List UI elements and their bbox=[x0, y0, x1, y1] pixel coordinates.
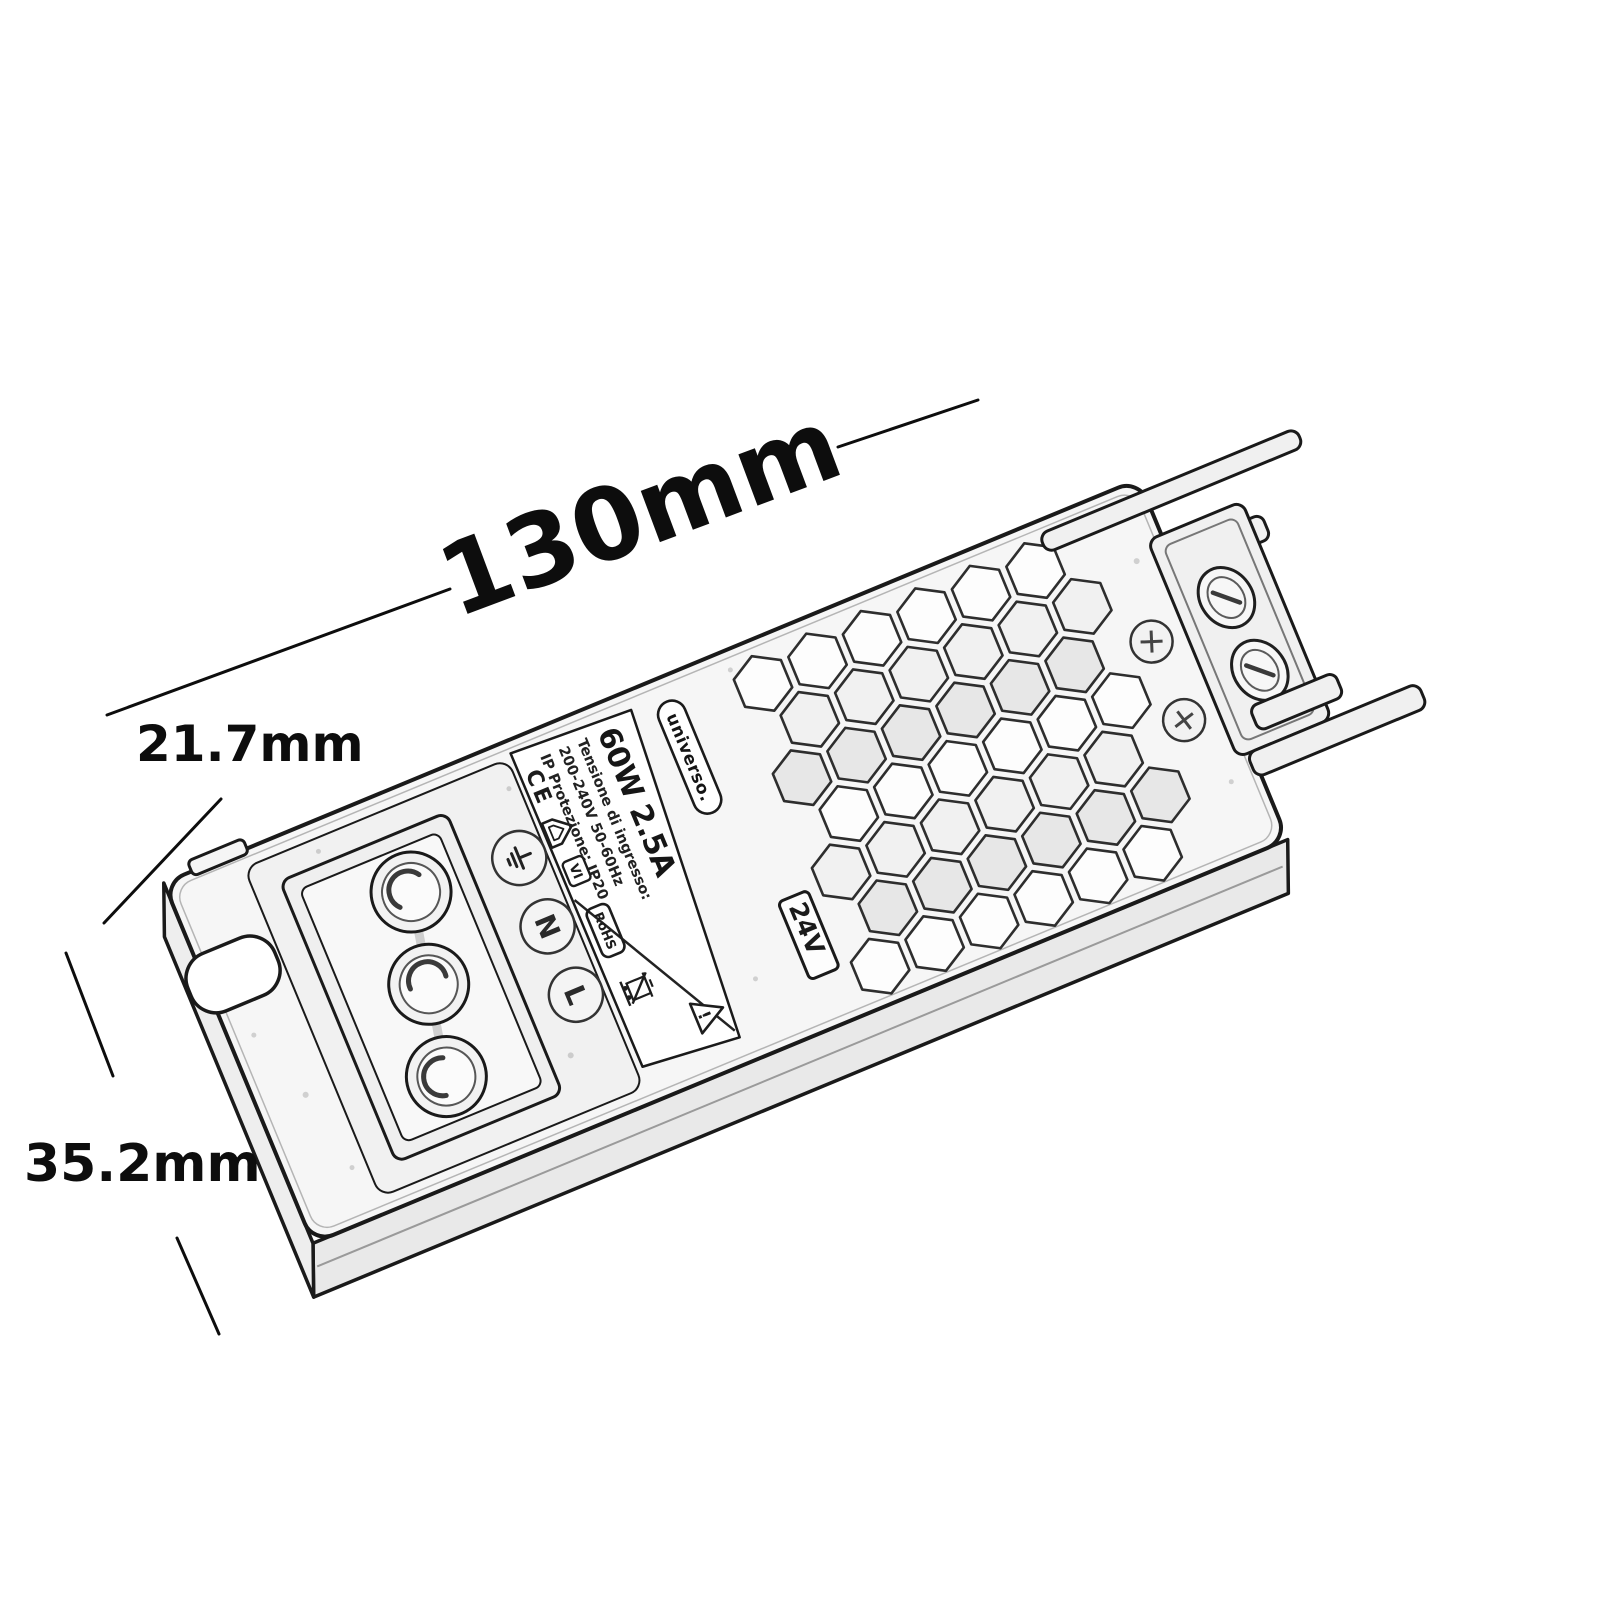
length-extension-line-right bbox=[838, 400, 978, 447]
width-extension-line-bottom bbox=[177, 1238, 219, 1334]
width-dimension-label: 35.2mm bbox=[24, 1134, 261, 1194]
figure-canvas: N L 60W 2.5A Tensione di ingresso: 200-2… bbox=[0, 0, 1600, 1600]
length-extension-line-left bbox=[107, 589, 450, 715]
drawing-stage: N L 60W 2.5A Tensione di ingresso: 200-2… bbox=[0, 0, 1600, 1600]
width-extension-line-top bbox=[66, 953, 113, 1076]
length-dimension-label: 130mm bbox=[424, 385, 856, 641]
depth-dimension-label: 21.7mm bbox=[136, 715, 364, 773]
cover-screw bbox=[1130, 620, 1174, 664]
power-supply-drawing: N L 60W 2.5A Tensione di ingresso: 200-2… bbox=[141, 400, 1473, 1297]
